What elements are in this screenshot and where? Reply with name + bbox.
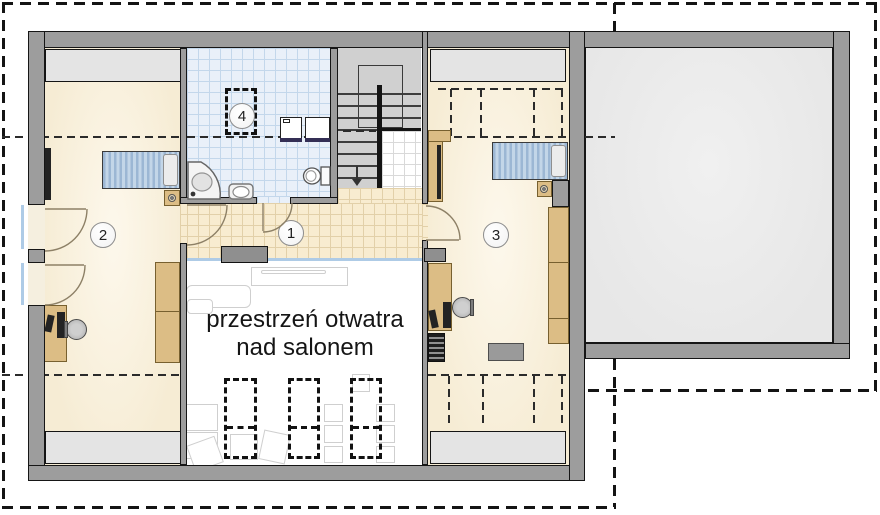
garage-roof-outline-h (588, 389, 877, 392)
room-number: 3 (492, 227, 500, 244)
wall-garage-right (833, 31, 850, 359)
washing-machine-detail (283, 119, 290, 123)
wardrobe-zone-divider-2 (480, 89, 482, 137)
bedroom-left-floor (45, 48, 181, 465)
wall-bath-bottom-a (180, 197, 257, 204)
open-space-caption: przestrzeń otwatra nad salonem (183, 306, 427, 362)
knee-storage-divider-3 (533, 376, 535, 426)
chair-below-outline-3 (324, 446, 343, 463)
tv-screen-right (437, 145, 441, 199)
room-number: 2 (99, 227, 107, 244)
room-number: 4 (238, 108, 246, 125)
stairs-down-arrow-icon (352, 179, 362, 186)
attic-void-over-garage (585, 46, 833, 343)
outer-wall-bottom (28, 465, 585, 481)
open-space-caption-line1: przestrzeń otwatra (183, 306, 427, 334)
room-label-hall: 1 (278, 220, 304, 246)
dryer-base (305, 138, 330, 142)
tv-panel-left-wall (44, 148, 51, 200)
desk-chair-right-back (470, 299, 474, 316)
wardrobe-zone-top-line (438, 88, 564, 90)
bedroom-right-door-threshold (422, 204, 428, 240)
chair-below-outline-1 (324, 404, 343, 422)
roof-slope-line-upper-garage (585, 136, 615, 138)
wardrobe-left (155, 262, 180, 363)
balcony-railing-2 (21, 263, 24, 305)
stair-tread (338, 141, 378, 143)
open-space-caption-line2: nad salonem (183, 334, 427, 362)
chimney-block (221, 246, 268, 263)
skylight-salon-1-divider (227, 426, 254, 429)
roof-outline-top (2, 2, 877, 5)
wall-bedroom-right-a (422, 31, 428, 204)
wardrobe-zone-divider-4 (561, 89, 563, 137)
wardrobe-right (548, 207, 569, 344)
stair-tread (338, 165, 378, 167)
outer-wall-top (28, 31, 850, 48)
roof-outline-left (2, 2, 5, 508)
wardrobe-right-divider-1 (549, 262, 568, 263)
stair-tread (338, 153, 378, 155)
low-zone-bedroom-right-bottom (430, 431, 566, 464)
low-zone-bedroom-left-bottom (45, 431, 181, 464)
low-zone-bedroom-right-top (430, 49, 566, 82)
room-label-bathroom: 4 (229, 103, 255, 129)
skylight-salon-2-divider (291, 426, 317, 429)
knee-storage-divider-4 (561, 376, 563, 426)
wall-garage-bottom (585, 343, 850, 359)
room-label-bedroom-left: 2 (90, 222, 116, 248)
bench-right (488, 343, 524, 361)
garage-roof-outline-v (613, 359, 616, 507)
room-label-bedroom-right: 3 (483, 222, 509, 248)
wardrobe-right-divider-2 (549, 318, 568, 319)
washing-machine-base (280, 138, 302, 142)
outer-wall-left-b (28, 249, 45, 263)
lamp-left (168, 194, 176, 202)
skylight-salon-2 (288, 378, 320, 459)
wall-bath-bottom-b (290, 197, 338, 204)
wall-bath-stairs (330, 48, 338, 203)
stair-landing (382, 128, 421, 188)
sofa-below-outline-3 (186, 404, 218, 431)
monitor-right (443, 302, 451, 328)
tv-below-outline (261, 270, 326, 274)
chair-below-outline-2 (324, 425, 343, 443)
roof-outline-bottom (2, 506, 616, 509)
desk-chair-left-back (64, 321, 68, 338)
wardrobe-left-divider (156, 311, 179, 312)
outer-wall-left-a (28, 31, 45, 205)
bedroom-left-door-threshold (180, 203, 187, 243)
balcony-railing-1 (21, 205, 24, 249)
lamp-right (540, 185, 548, 193)
floor-plan: 1 2 3 4 przestrzeń otwatra nad salonem (0, 0, 880, 515)
balcony-door-sill-2 (28, 263, 45, 305)
bed-right-pillow (551, 145, 566, 177)
roof-outline-right (874, 2, 877, 391)
wardrobe-zone-divider-3 (533, 89, 535, 137)
stair-cut-line (343, 130, 376, 132)
wall-bedroom-left-a (180, 48, 187, 203)
bed-left-pillow (163, 154, 178, 186)
low-zone-bedroom-left-top (45, 49, 181, 82)
radiator-right (428, 333, 445, 362)
wall-pocket-right (552, 180, 569, 207)
desk-chair-left (66, 319, 87, 340)
room-number: 1 (287, 225, 295, 242)
skylight-salon-3-divider (353, 426, 379, 429)
skylight-salon-3 (350, 378, 382, 459)
chimney-post-right (424, 248, 446, 262)
stairs-down-arrow-stem (356, 166, 358, 179)
balcony-door-sill-1 (28, 205, 45, 249)
outer-wall-left-c (28, 305, 45, 481)
knee-storage-divider-1 (448, 376, 450, 426)
skylight-salon-1 (224, 378, 257, 459)
knee-storage-divider-2 (482, 376, 484, 426)
wall-main-right (569, 31, 585, 481)
